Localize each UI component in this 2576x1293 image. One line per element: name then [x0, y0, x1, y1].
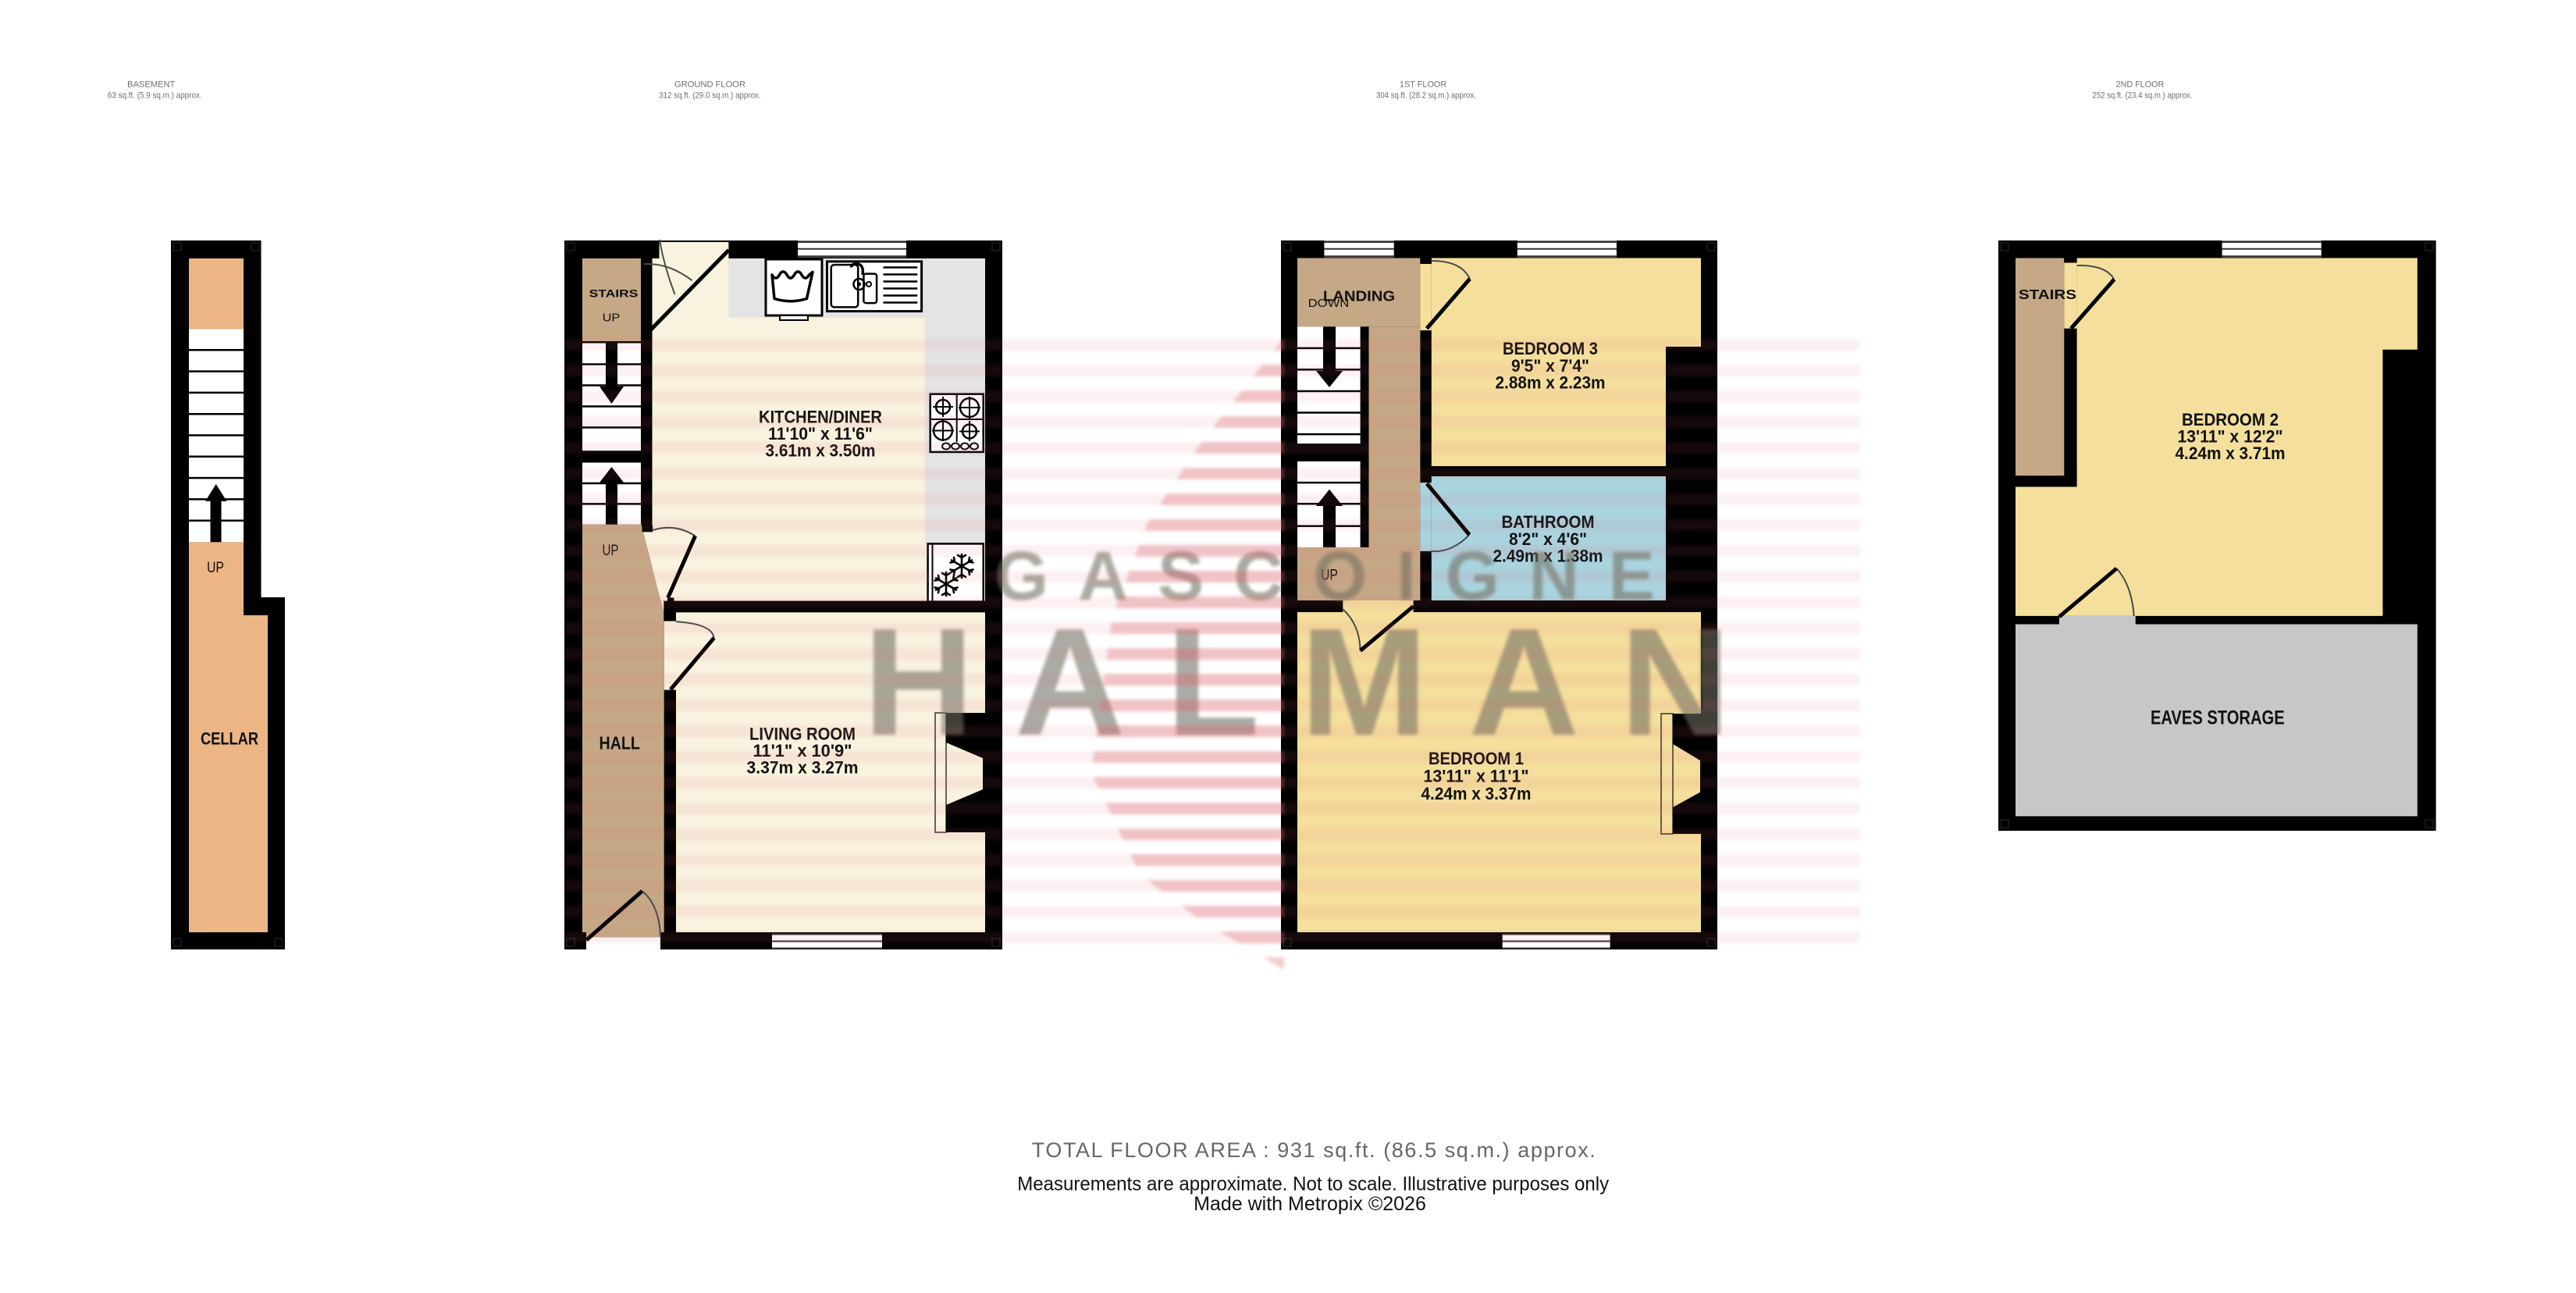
svg-text:STAIRS: STAIRS [2019, 287, 2076, 302]
svg-text:252 sq.ft. (23.4 sq.m.) approx: 252 sq.ft. (23.4 sq.m.) approx. [2092, 91, 2192, 100]
svg-text:TOTAL FLOOR AREA : 931 sq.ft.: TOTAL FLOOR AREA : 931 sq.ft. (86.5 sq.m… [1032, 1138, 1596, 1162]
svg-text:EAVES STORAGE: EAVES STORAGE [2151, 707, 2285, 729]
svg-text:CELLAR: CELLAR [201, 729, 258, 749]
svg-text:UP: UP [207, 560, 224, 576]
svg-text:4.24m x 3.71m: 4.24m x 3.71m [2176, 443, 2286, 463]
svg-text:304 sq.ft. (28.2 sq.m.) approx: 304 sq.ft. (28.2 sq.m.) approx. [1376, 91, 1476, 100]
svg-text:DOWN: DOWN [1308, 297, 1350, 310]
svg-text:Measurements are approximate.: Measurements are approximate. Not to sca… [1017, 1174, 1609, 1195]
svg-text:2ND FLOOR: 2ND FLOOR [2116, 80, 2165, 90]
svg-text:Made with Metropix ©2026: Made with Metropix ©2026 [1194, 1193, 1426, 1215]
svg-text:63 sq.ft. (5.9 sq.m.) approx.: 63 sq.ft. (5.9 sq.m.) approx. [108, 91, 202, 100]
svg-text:STAIRS: STAIRS [589, 287, 639, 299]
svg-text:GROUND FLOOR: GROUND FLOOR [674, 80, 745, 90]
svg-text:312 sq.ft. (29.0 sq.m.) approx: 312 sq.ft. (29.0 sq.m.) approx. [659, 91, 761, 100]
svg-text:1ST FLOOR: 1ST FLOOR [1400, 80, 1446, 90]
svg-text:BASEMENT: BASEMENT [127, 80, 175, 90]
svg-text:UP: UP [603, 311, 621, 324]
